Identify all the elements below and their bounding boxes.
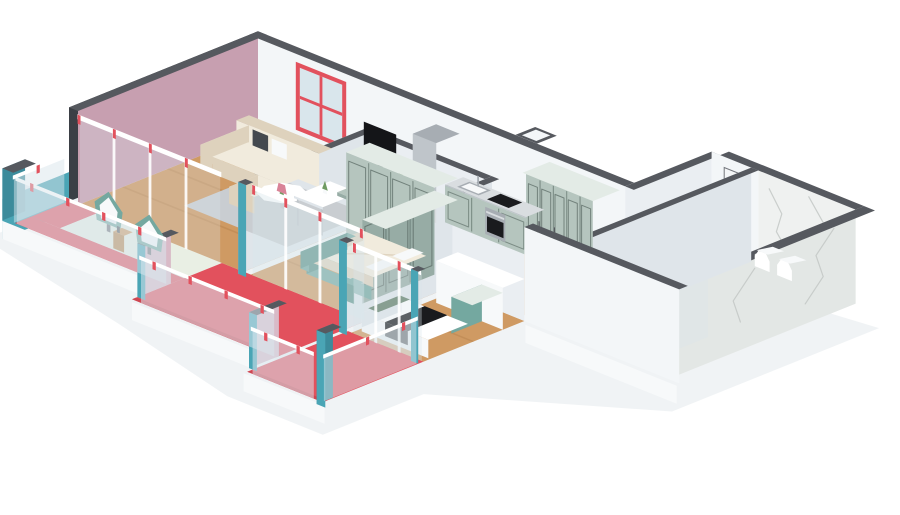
glass-red-tick: [360, 228, 363, 238]
glass-red-tick: [185, 158, 188, 168]
glass-mullion: [185, 161, 188, 250]
balustrade-red-tick: [264, 332, 267, 341]
glass-red-tick: [284, 198, 287, 208]
balustrade-red-tick: [225, 290, 228, 299]
apartment-3d-floorplan: [0, 0, 900, 515]
balustrade-red-tick: [153, 261, 156, 270]
pier-teal-south-face: [238, 182, 246, 277]
balustrade-red-tick: [261, 305, 264, 314]
wardrobe-handle: [554, 227, 555, 232]
sink-faucet: [477, 176, 479, 188]
counter-door-seam: [471, 198, 472, 232]
glass-red-tick: [113, 129, 116, 139]
glass-red-tick: [398, 261, 401, 271]
wardrobe-handle: [538, 221, 539, 226]
balustrade-red-tick: [189, 276, 192, 285]
balustrade-red-tick: [66, 197, 69, 206]
glass-mullion: [284, 201, 287, 290]
balustrade-red-tick: [297, 345, 300, 354]
glass-red-tick: [353, 243, 356, 253]
balustrade-red-tick: [37, 165, 40, 174]
balustrade-red-tick: [102, 212, 105, 221]
balustrade-red-tick: [366, 336, 369, 345]
balustrade-red-tick: [138, 226, 141, 235]
floorplan-render-stage: [0, 0, 900, 515]
balustrade-red-tick: [402, 322, 405, 331]
glass-red-tick: [252, 185, 255, 195]
glass-mullion: [374, 254, 377, 343]
glass-red-tick: [78, 115, 81, 125]
glass-red-tick: [149, 143, 152, 153]
glass-red-tick: [319, 212, 322, 222]
glass-mullion: [319, 214, 322, 303]
pier-teal-south-face: [339, 240, 347, 335]
